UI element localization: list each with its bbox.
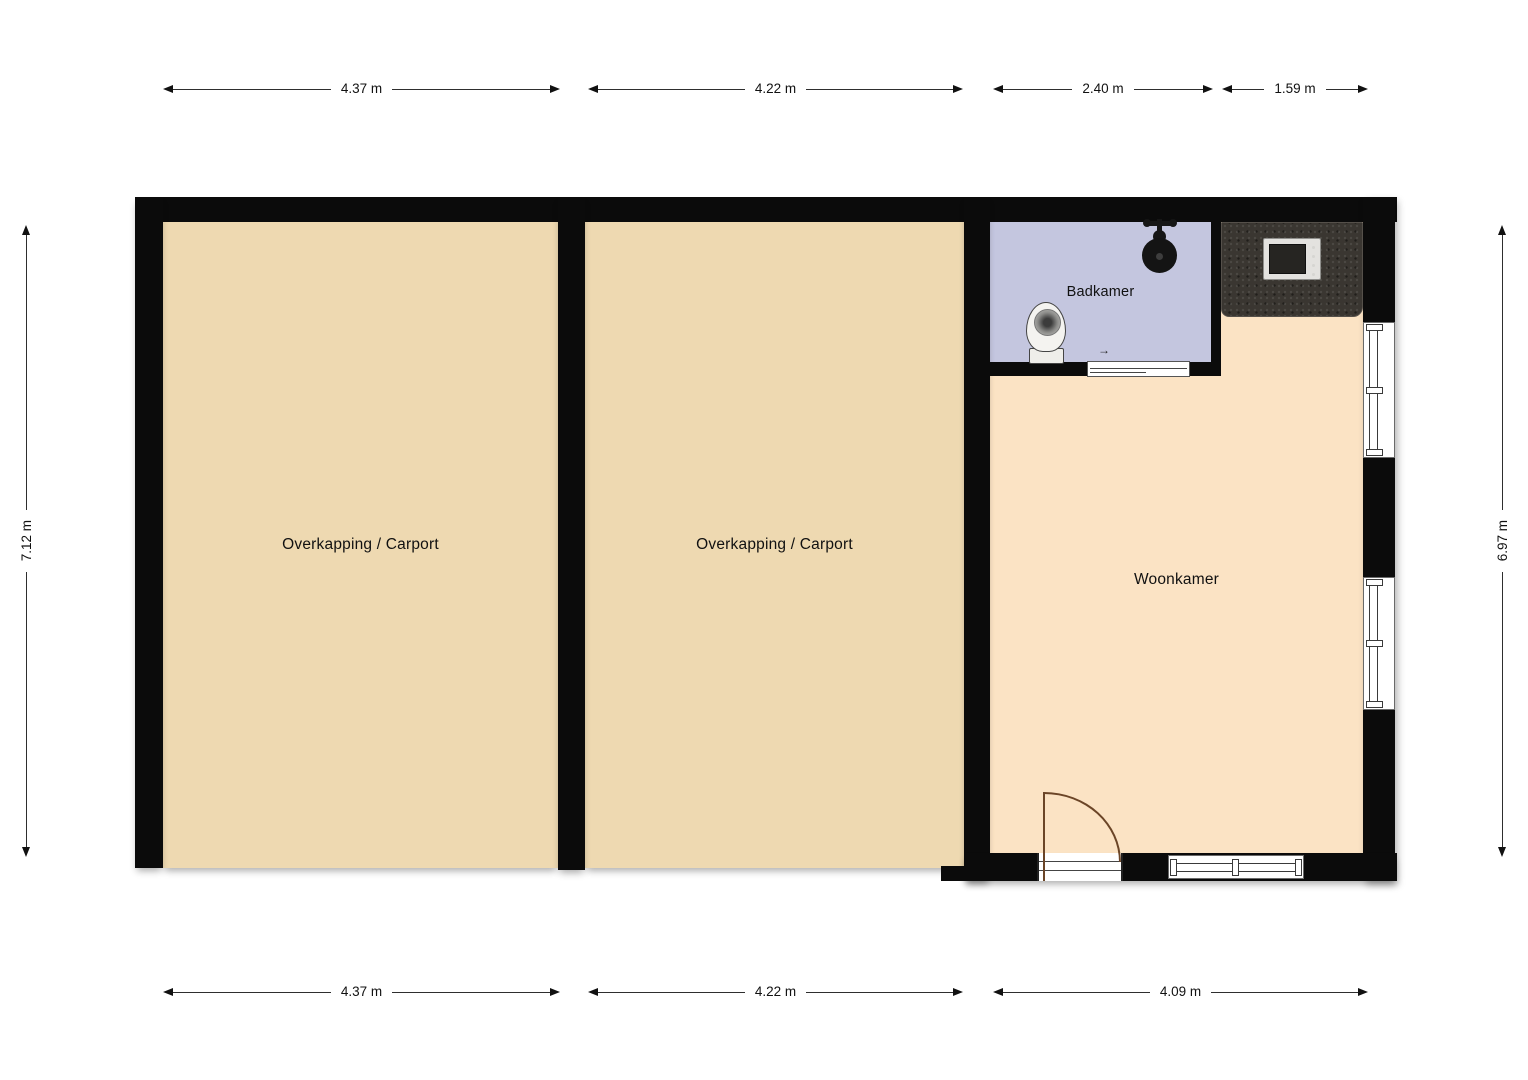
wall-woonkamer-left [964,197,990,881]
dimension-label: 6.97 m [1495,510,1510,571]
window-cap [1170,859,1177,876]
stove-knob [1312,255,1315,258]
arrowhead [953,85,963,93]
shower-icon [1141,217,1181,275]
toilet-icon [1026,302,1068,366]
arrowhead [993,85,1003,93]
dimension-label: 4.37 m [331,984,392,999]
toilet-bowl-inner [1034,309,1061,336]
sliding-door-track [1090,368,1187,369]
shower-valve-knob [1169,219,1177,227]
wall-woonkamer-bottom-foot [941,866,964,881]
wall-left [135,197,163,868]
window-cap [1366,701,1383,708]
threshold-line [1039,870,1121,871]
arrowhead [550,988,560,996]
window-right-lower [1363,577,1395,710]
dimension-left-height: 7.12 m [18,225,34,857]
wall-divider-carports [558,197,585,870]
window-cap [1366,579,1383,586]
wall-badkamer-right [1211,222,1221,376]
dimension-label: 2.40 m [1072,81,1133,96]
arrowhead [22,847,30,857]
dimension-top-keuken: 1.59 m [1222,82,1368,96]
dimension-bottom-carport2: 4.22 m [588,985,963,999]
dimension-label: 1.59 m [1264,81,1325,96]
arrowhead [1222,85,1232,93]
dimension-label: 4.37 m [331,81,392,96]
dimension-right-height: 6.97 m [1494,225,1510,857]
window-right-upper [1363,322,1395,458]
arrowhead [1498,847,1506,857]
room-label-woonkamer: Woonkamer [990,571,1363,589]
stove-knob [1312,264,1315,267]
room-label-badkamer: Badkamer [1067,284,1135,300]
arrowhead [993,988,1003,996]
stove-knob [1312,246,1315,249]
dimension-top-badkamer: 2.40 m [993,82,1213,96]
room-label-carport-2: Overkapping / Carport [696,536,853,554]
dimension-label: 4.09 m [1150,984,1211,999]
arrowhead [588,988,598,996]
dimension-bottom-carport1: 4.37 m [163,985,560,999]
arrowhead [1498,225,1506,235]
dimension-bottom-woonkamer: 4.09 m [993,985,1368,999]
arrowhead [163,988,173,996]
shower-nozzle [1156,253,1163,260]
window-cap [1232,859,1239,876]
arrowhead [22,225,30,235]
arrowhead [953,988,963,996]
window-cap [1366,449,1383,456]
kitchen-counter [1221,222,1363,317]
stove-window [1269,244,1306,274]
dimension-top-carport2: 4.22 m [588,82,963,96]
dimension-label: 4.22 m [745,81,806,96]
wall-top [135,197,1397,222]
room-carport-2: Overkapping / Carport [585,222,964,868]
arrowhead [1358,988,1368,996]
window-cap [1366,640,1383,647]
arrowhead [550,85,560,93]
dimension-label: 4.22 m [745,984,806,999]
floorplan-canvas: Overkapping / Carport Overkapping / Carp… [0,0,1528,1080]
arrowhead [588,85,598,93]
sliding-door-panel [1090,372,1146,373]
wall-right [1363,197,1395,881]
room-label-carport-1: Overkapping / Carport [282,536,439,554]
stove-knob [1312,273,1315,276]
sliding-direction-arrow: → [1098,344,1110,356]
room-carport-1: Overkapping / Carport [163,222,558,868]
arrowhead [1358,85,1368,93]
arrowhead [1203,85,1213,93]
stove-icon [1263,238,1321,280]
window-cap [1295,859,1302,876]
dimension-top-carport1: 4.37 m [163,82,560,96]
shower-valve-knob [1143,219,1151,227]
badkamer-sliding-door [1087,361,1190,377]
window-cap [1366,387,1383,394]
arrowhead [163,85,173,93]
dimension-label: 7.12 m [19,510,34,571]
door-leaf [1043,792,1045,881]
window-cap [1366,324,1383,331]
window-bottom [1168,855,1304,879]
